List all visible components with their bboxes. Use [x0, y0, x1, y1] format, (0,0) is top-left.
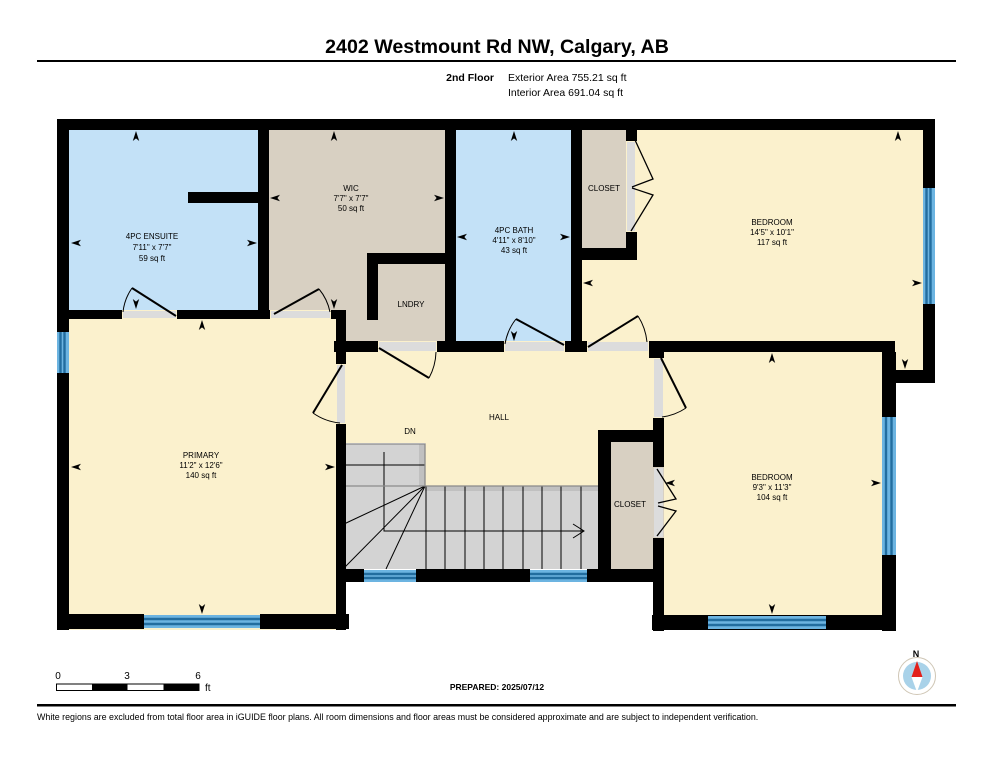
svg-text:PREPARED: 2025/07/12: PREPARED: 2025/07/12: [450, 682, 545, 692]
svg-text:11'2" x 12'6": 11'2" x 12'6": [179, 461, 222, 470]
svg-text:WIC: WIC: [343, 184, 359, 193]
svg-text:PRIMARY: PRIMARY: [183, 451, 220, 460]
svg-text:7'11" x 7'7": 7'11" x 7'7": [133, 243, 172, 252]
svg-text:7'7" x 7'7": 7'7" x 7'7": [334, 194, 369, 203]
svg-text:Interior Area 691.04 sq ft: Interior Area 691.04 sq ft: [508, 87, 623, 99]
svg-text:2402 Westmount Rd NW, Calgary,: 2402 Westmount Rd NW, Calgary, AB: [325, 36, 669, 58]
svg-text:CLOSET: CLOSET: [614, 500, 646, 509]
svg-text:DN: DN: [404, 427, 416, 436]
svg-text:4'11" x 8'10": 4'11" x 8'10": [492, 236, 535, 245]
svg-text:3: 3: [124, 671, 130, 682]
svg-text:104 sq ft: 104 sq ft: [757, 493, 788, 502]
svg-text:Exterior Area 755.21 sq ft: Exterior Area 755.21 sq ft: [508, 72, 627, 84]
svg-text:LNDRY: LNDRY: [398, 300, 426, 309]
svg-text:59 sq ft: 59 sq ft: [139, 254, 166, 263]
svg-text:CLOSET: CLOSET: [588, 184, 620, 193]
svg-text:14'5" x 10'1": 14'5" x 10'1": [750, 228, 794, 237]
svg-text:43 sq ft: 43 sq ft: [501, 246, 528, 255]
svg-text:ft: ft: [205, 683, 211, 694]
svg-text:White regions are excluded fro: White regions are excluded from total fl…: [37, 712, 758, 722]
svg-text:2nd Floor: 2nd Floor: [446, 72, 494, 84]
svg-text:140 sq ft: 140 sq ft: [186, 471, 217, 480]
svg-text:BEDROOM: BEDROOM: [751, 218, 793, 227]
svg-text:50 sq ft: 50 sq ft: [338, 204, 365, 213]
svg-text:117 sq ft: 117 sq ft: [757, 238, 788, 247]
svg-text:HALL: HALL: [489, 413, 510, 422]
svg-text:0: 0: [55, 671, 61, 682]
svg-text:4PC ENSUITE: 4PC ENSUITE: [126, 232, 178, 241]
svg-text:BEDROOM: BEDROOM: [751, 473, 793, 482]
svg-text:9'3" x 11'3": 9'3" x 11'3": [753, 483, 792, 492]
svg-text:4PC BATH: 4PC BATH: [495, 226, 534, 235]
svg-text:6: 6: [195, 671, 201, 682]
